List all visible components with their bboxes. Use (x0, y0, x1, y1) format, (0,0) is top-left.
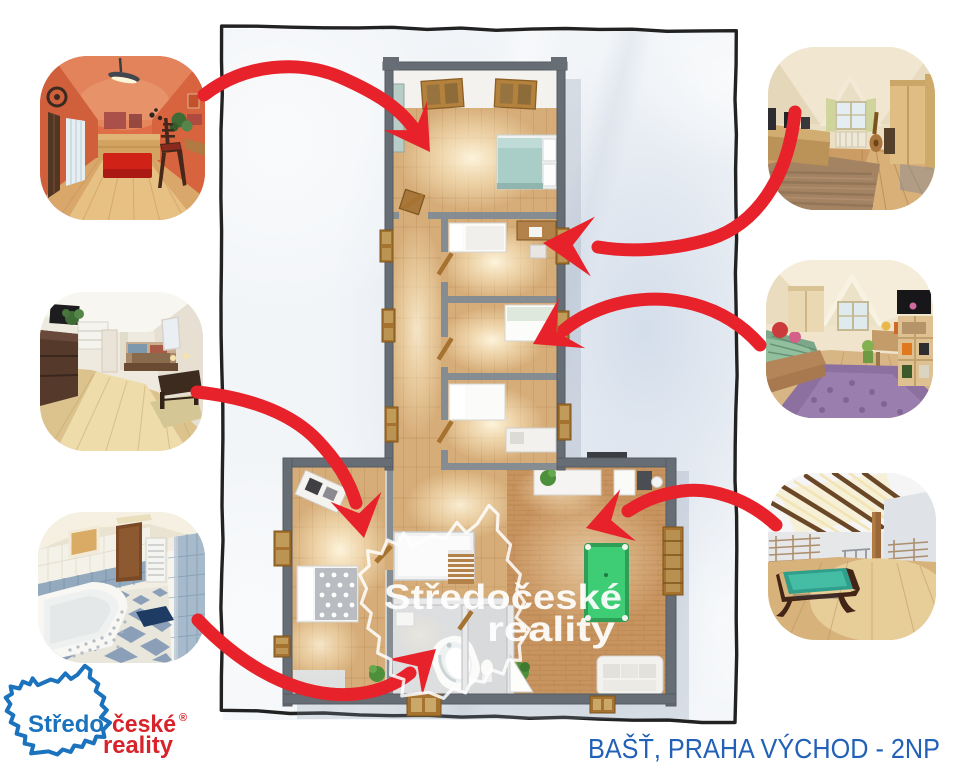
svg-text:reality: reality (487, 610, 616, 649)
svg-text:®: ® (179, 712, 187, 724)
svg-text:BAŠŤ, PRAHA VÝCHOD - 2NP: BAŠŤ, PRAHA VÝCHOD - 2NP (588, 733, 940, 764)
svg-text:reality: reality (103, 732, 174, 759)
svg-text:Středo: Středo (28, 711, 104, 738)
